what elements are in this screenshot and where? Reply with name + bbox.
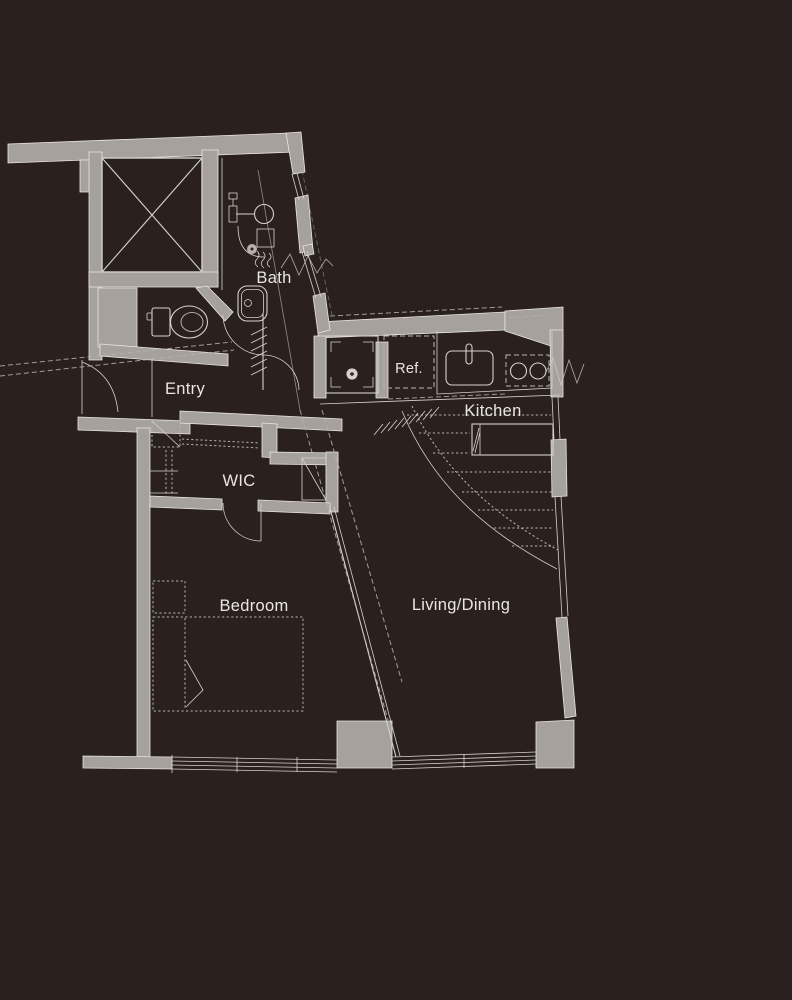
- floor-plan: Bath Entry WIC Bedroom Living/Dining Kit…: [0, 0, 792, 1000]
- label-bath: Bath: [256, 269, 291, 287]
- label-entry: Entry: [165, 380, 205, 398]
- label-kitchen: Kitchen: [464, 402, 521, 420]
- label-bedroom: Bedroom: [219, 597, 288, 615]
- bath-drain-dot: [251, 248, 254, 251]
- label-living-dining: Living/Dining: [412, 596, 510, 614]
- elevator-right-wall: [202, 150, 218, 287]
- label-refrigerator: Ref.: [395, 361, 423, 377]
- elevator-bottom-wall: [89, 272, 218, 287]
- elevator-shaft: [102, 158, 202, 272]
- bottom-right-corner-column: [536, 720, 574, 768]
- bottom-center-pillar: [337, 721, 392, 768]
- washer-drain-dot: [350, 372, 354, 376]
- label-wic: WIC: [223, 472, 256, 490]
- bedroom-left-wall: [137, 428, 150, 757]
- washer-left-wall: [314, 336, 326, 398]
- bedroom-bottom-wall: [83, 756, 172, 769]
- toilet-left-wall-block: [98, 288, 137, 347]
- bath-window-mullion-mid: [303, 244, 314, 256]
- floor-plan-page: Bath Entry WIC Bedroom Living/Dining Kit…: [0, 0, 792, 1000]
